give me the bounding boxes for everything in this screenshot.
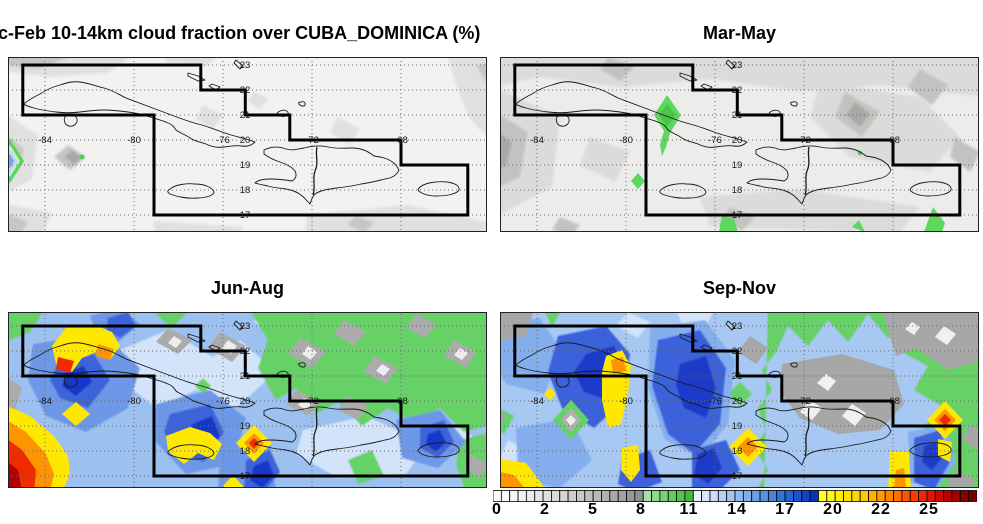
- colorbar-segment: [860, 491, 868, 502]
- lon-tick-label: -76: [216, 396, 230, 407]
- lat-tick-label: 18: [732, 446, 743, 457]
- lat-tick-label: 18: [240, 446, 251, 457]
- lat-tick-label: 23: [732, 321, 743, 332]
- lon-tick-label: -80: [127, 135, 141, 146]
- colorbar-tick-label: 2: [540, 501, 550, 519]
- colorbar-segment: [610, 491, 618, 502]
- colorbar-segment: [635, 491, 643, 502]
- lat-tick-label: 23: [732, 60, 743, 71]
- colorbar-tick-label: 20: [823, 501, 843, 519]
- lat-tick-label: 22: [732, 346, 743, 357]
- colorbar-tick-label: 25: [919, 501, 939, 519]
- colorbar-segment: [510, 491, 518, 502]
- colorbar-tick-label: 11: [680, 501, 699, 519]
- colorbar-segment: [835, 491, 843, 502]
- colorbar-segment: [760, 491, 768, 502]
- colorbar-tick-label: 0: [492, 501, 502, 519]
- colorbar-segment: [894, 491, 902, 502]
- colorbar-segment: [869, 491, 877, 502]
- lon-tick-label: -80: [127, 396, 141, 407]
- panel-mar-may: -84-80-76-72-6823222120191817: [500, 57, 979, 232]
- colorbar-segment: [785, 491, 793, 502]
- lon-tick-label: -68: [886, 396, 900, 407]
- colorbar-segment: [551, 491, 559, 502]
- lat-tick-label: 19: [732, 421, 743, 432]
- colorbar-segment: [660, 491, 668, 502]
- colorbar-segment: [910, 491, 918, 502]
- colorbar-segment: [677, 491, 685, 502]
- colorbar-segment: [827, 491, 835, 502]
- colorbar-segment: [952, 491, 960, 502]
- colorbar-segment: [685, 491, 693, 502]
- panel-title-jun-aug: Jun-Aug: [8, 278, 487, 299]
- panel-dec-feb: -84-80-76-72-6823222120191817: [8, 57, 487, 232]
- lon-tick-label: -84: [530, 396, 544, 407]
- colorbar-segment: [593, 491, 601, 502]
- lat-tick-label: 22: [732, 85, 743, 96]
- lat-tick-label: 21: [732, 110, 743, 121]
- colorbar-segment: [969, 491, 977, 502]
- colorbar-segment: [627, 491, 635, 502]
- lon-tick-label: -80: [619, 396, 633, 407]
- panel-title-sep-nov: Sep-Nov: [500, 278, 979, 299]
- lon-tick-label: -68: [886, 135, 900, 146]
- colorbar-segment: [852, 491, 860, 502]
- lat-tick-label: 17: [240, 210, 251, 221]
- colorbar-segment: [935, 491, 943, 502]
- colorbar-tick-label: 5: [588, 501, 598, 519]
- colorbar-segment: [743, 491, 751, 502]
- lon-tick-label: -68: [394, 135, 408, 146]
- colorbar-segment: [810, 491, 818, 502]
- lat-tick-label: 19: [240, 421, 251, 432]
- panel-title-dec-feb: c-Feb 10-14km cloud fraction over CUBA_D…: [0, 23, 480, 44]
- lat-tick-label: 20: [732, 396, 743, 407]
- lon-tick-label: -80: [619, 135, 633, 146]
- lat-tick-label: 17: [240, 471, 251, 482]
- colorbar-tick-label: 22: [871, 501, 891, 519]
- colorbar-segment: [727, 491, 735, 502]
- lon-tick-label: -76: [708, 135, 722, 146]
- colorbar-segment: [585, 491, 593, 502]
- map-dec-feb: -84-80-76-72-6823222120191817: [8, 57, 487, 232]
- colorbar-segment: [885, 491, 893, 502]
- lon-tick-label: -68: [394, 396, 408, 407]
- colorbar-segment: [668, 491, 676, 502]
- colorbar-segment: [576, 491, 584, 502]
- lon-tick-label: -72: [797, 135, 811, 146]
- colorbar-tick-label: 14: [727, 501, 747, 519]
- lat-tick-label: 19: [732, 160, 743, 171]
- colorbar: [493, 489, 977, 501]
- colorbar-segment: [568, 491, 576, 502]
- lat-tick-label: 20: [732, 135, 743, 146]
- lon-tick-label: -84: [530, 135, 544, 146]
- lon-tick-label: -84: [38, 135, 52, 146]
- lat-tick-label: 21: [240, 371, 251, 382]
- colorbar-segment: [877, 491, 885, 502]
- colorbar-segment: [702, 491, 710, 502]
- colorbar-segment: [735, 491, 743, 502]
- colorbar-segment: [818, 491, 826, 502]
- lat-tick-label: 21: [732, 371, 743, 382]
- colorbar-segment: [543, 491, 551, 502]
- lat-tick-label: 18: [240, 185, 251, 196]
- panel-title-mar-may: Mar-May: [500, 23, 979, 44]
- lon-tick-label: -72: [797, 396, 811, 407]
- colorbar-segment: [793, 491, 801, 502]
- colorbar-segment: [710, 491, 718, 502]
- lat-tick-label: 23: [240, 321, 251, 332]
- colorbar-segment: [518, 491, 526, 502]
- colorbar-segment: [601, 491, 609, 502]
- panel-sep-nov: -84-80-76-72-6823222120191817: [500, 312, 979, 488]
- lat-tick-label: 19: [240, 160, 251, 171]
- colorbar-tick-label: 17: [775, 501, 795, 519]
- colorbar-segment: [501, 491, 509, 502]
- colorbar-segment: [718, 491, 726, 502]
- colorbar-segment: [927, 491, 935, 502]
- figure-canvas: c-Feb 10-14km cloud fraction over CUBA_D…: [0, 0, 983, 524]
- colorbar-segment: [493, 491, 501, 502]
- lat-tick-label: 22: [240, 85, 251, 96]
- lat-tick-label: 17: [732, 471, 743, 482]
- colorbar-segment: [693, 491, 701, 502]
- panel-jun-aug: -84-80-76-72-6823222120191817: [8, 312, 487, 488]
- lat-tick-label: 17: [732, 210, 743, 221]
- colorbar-labels: 0258111417202225: [493, 501, 977, 523]
- colorbar-segment: [526, 491, 534, 502]
- lat-tick-label: 22: [240, 346, 251, 357]
- colorbar-segment: [768, 491, 776, 502]
- colorbar-segment: [919, 491, 927, 502]
- lon-tick-label: -76: [216, 135, 230, 146]
- lat-tick-label: 20: [240, 135, 251, 146]
- colorbar-segment: [752, 491, 760, 502]
- lat-tick-label: 23: [240, 60, 251, 71]
- map-sep-nov: -84-80-76-72-6823222120191817: [500, 312, 979, 488]
- colorbar-segment: [618, 491, 626, 502]
- lon-tick-label: -72: [305, 396, 319, 407]
- lat-tick-label: 21: [240, 110, 251, 121]
- lat-tick-label: 20: [240, 396, 251, 407]
- colorbar-segment: [802, 491, 810, 502]
- colorbar-segment: [902, 491, 910, 502]
- colorbar-tick-label: 8: [636, 501, 646, 519]
- colorbar-segment: [960, 491, 968, 502]
- lon-tick-label: -76: [708, 396, 722, 407]
- colorbar-segment: [535, 491, 543, 502]
- map-jun-aug: -84-80-76-72-6823222120191817: [8, 312, 487, 488]
- lon-tick-label: -84: [38, 396, 52, 407]
- colorbar-segment: [944, 491, 952, 502]
- colorbar-segment: [643, 491, 651, 502]
- lon-tick-label: -72: [305, 135, 319, 146]
- colorbar-segment: [652, 491, 660, 502]
- colorbar-segment: [777, 491, 785, 502]
- colorbar-segment: [843, 491, 851, 502]
- colorbar-segment: [560, 491, 568, 502]
- lat-tick-label: 18: [732, 185, 743, 196]
- map-mar-may: -84-80-76-72-6823222120191817: [500, 57, 979, 232]
